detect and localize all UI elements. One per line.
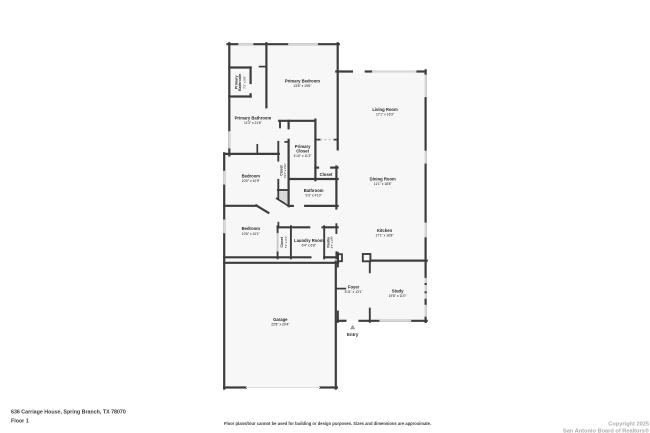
svg-text:17'1" x 16'8": 17'1" x 16'8": [375, 234, 394, 238]
svg-text:10'6" x 10'1": 10'6" x 10'1": [242, 232, 261, 236]
svg-text:San Antonio Board of Realtors®: San Antonio Board of Realtors®: [563, 427, 650, 433]
svg-text:Closet: Closet: [320, 172, 333, 177]
svg-text:Bedroom: Bedroom: [242, 226, 261, 231]
svg-text:Study: Study: [392, 289, 404, 294]
svg-text:22'8" x 20'4": 22'8" x 20'4": [271, 322, 290, 326]
svg-text:Primary Bedroom: Primary Bedroom: [285, 79, 320, 84]
svg-text:13'8" x 19'6": 13'8" x 19'6": [293, 84, 312, 88]
svg-text:Closet: Closet: [296, 148, 309, 153]
svg-text:5'11" x 13'1": 5'11" x 13'1": [345, 290, 364, 294]
svg-text:9'3" x 4'10": 9'3" x 4'10": [305, 194, 322, 198]
svg-text:Bathroom: Bathroom: [304, 188, 324, 193]
svg-text:7'2" x 5'8": 7'2" x 5'8": [242, 76, 246, 89]
svg-text:Laundry Room: Laundry Room: [294, 238, 324, 243]
svg-text:Floor plans/tour cannot be use: Floor plans/tour cannot be used for buil…: [224, 421, 431, 426]
svg-text:7'1" x 3'1": 7'1" x 3'1": [284, 236, 288, 248]
svg-text:636 Carriage House, Spring Bra: 636 Carriage House, Spring Branch, TX 78…: [11, 410, 126, 416]
svg-text:Kitchen: Kitchen: [377, 228, 393, 233]
svg-text:11'1" x 18'8": 11'1" x 18'8": [374, 182, 393, 186]
svg-text:10'0" x 10'9": 10'0" x 10'9": [242, 179, 261, 183]
svg-text:4'11" x 3'10": 4'11" x 3'10": [283, 163, 287, 178]
svg-text:17'1" x 16'3": 17'1" x 16'3": [376, 113, 395, 117]
svg-text:11'3" x 21'6": 11'3" x 21'6": [244, 121, 263, 125]
svg-text:Floor 1: Floor 1: [11, 419, 29, 425]
svg-text:Living Room: Living Room: [372, 107, 398, 112]
svg-text:Foyer: Foyer: [348, 285, 360, 290]
svg-text:Primary Bathroom: Primary Bathroom: [235, 115, 272, 120]
svg-text:Dining Room: Dining Room: [370, 176, 396, 181]
svg-text:Bedroom: Bedroom: [242, 173, 261, 178]
svg-text:4'10" x 11'3": 4'10" x 11'3": [294, 154, 313, 158]
svg-text:Bathroom: Bathroom: [238, 73, 242, 91]
svg-text:6'4" x 6'8": 6'4" x 6'8": [302, 244, 317, 248]
svg-text:2'7" x 6'5": 2'7" x 6'5": [330, 236, 334, 248]
svg-text:Entry: Entry: [347, 332, 359, 337]
svg-text:19'8" x 11'0": 19'8" x 11'0": [389, 294, 408, 298]
svg-text:Copyright 2025: Copyright 2025: [608, 421, 649, 427]
svg-text:Garage: Garage: [273, 317, 288, 322]
